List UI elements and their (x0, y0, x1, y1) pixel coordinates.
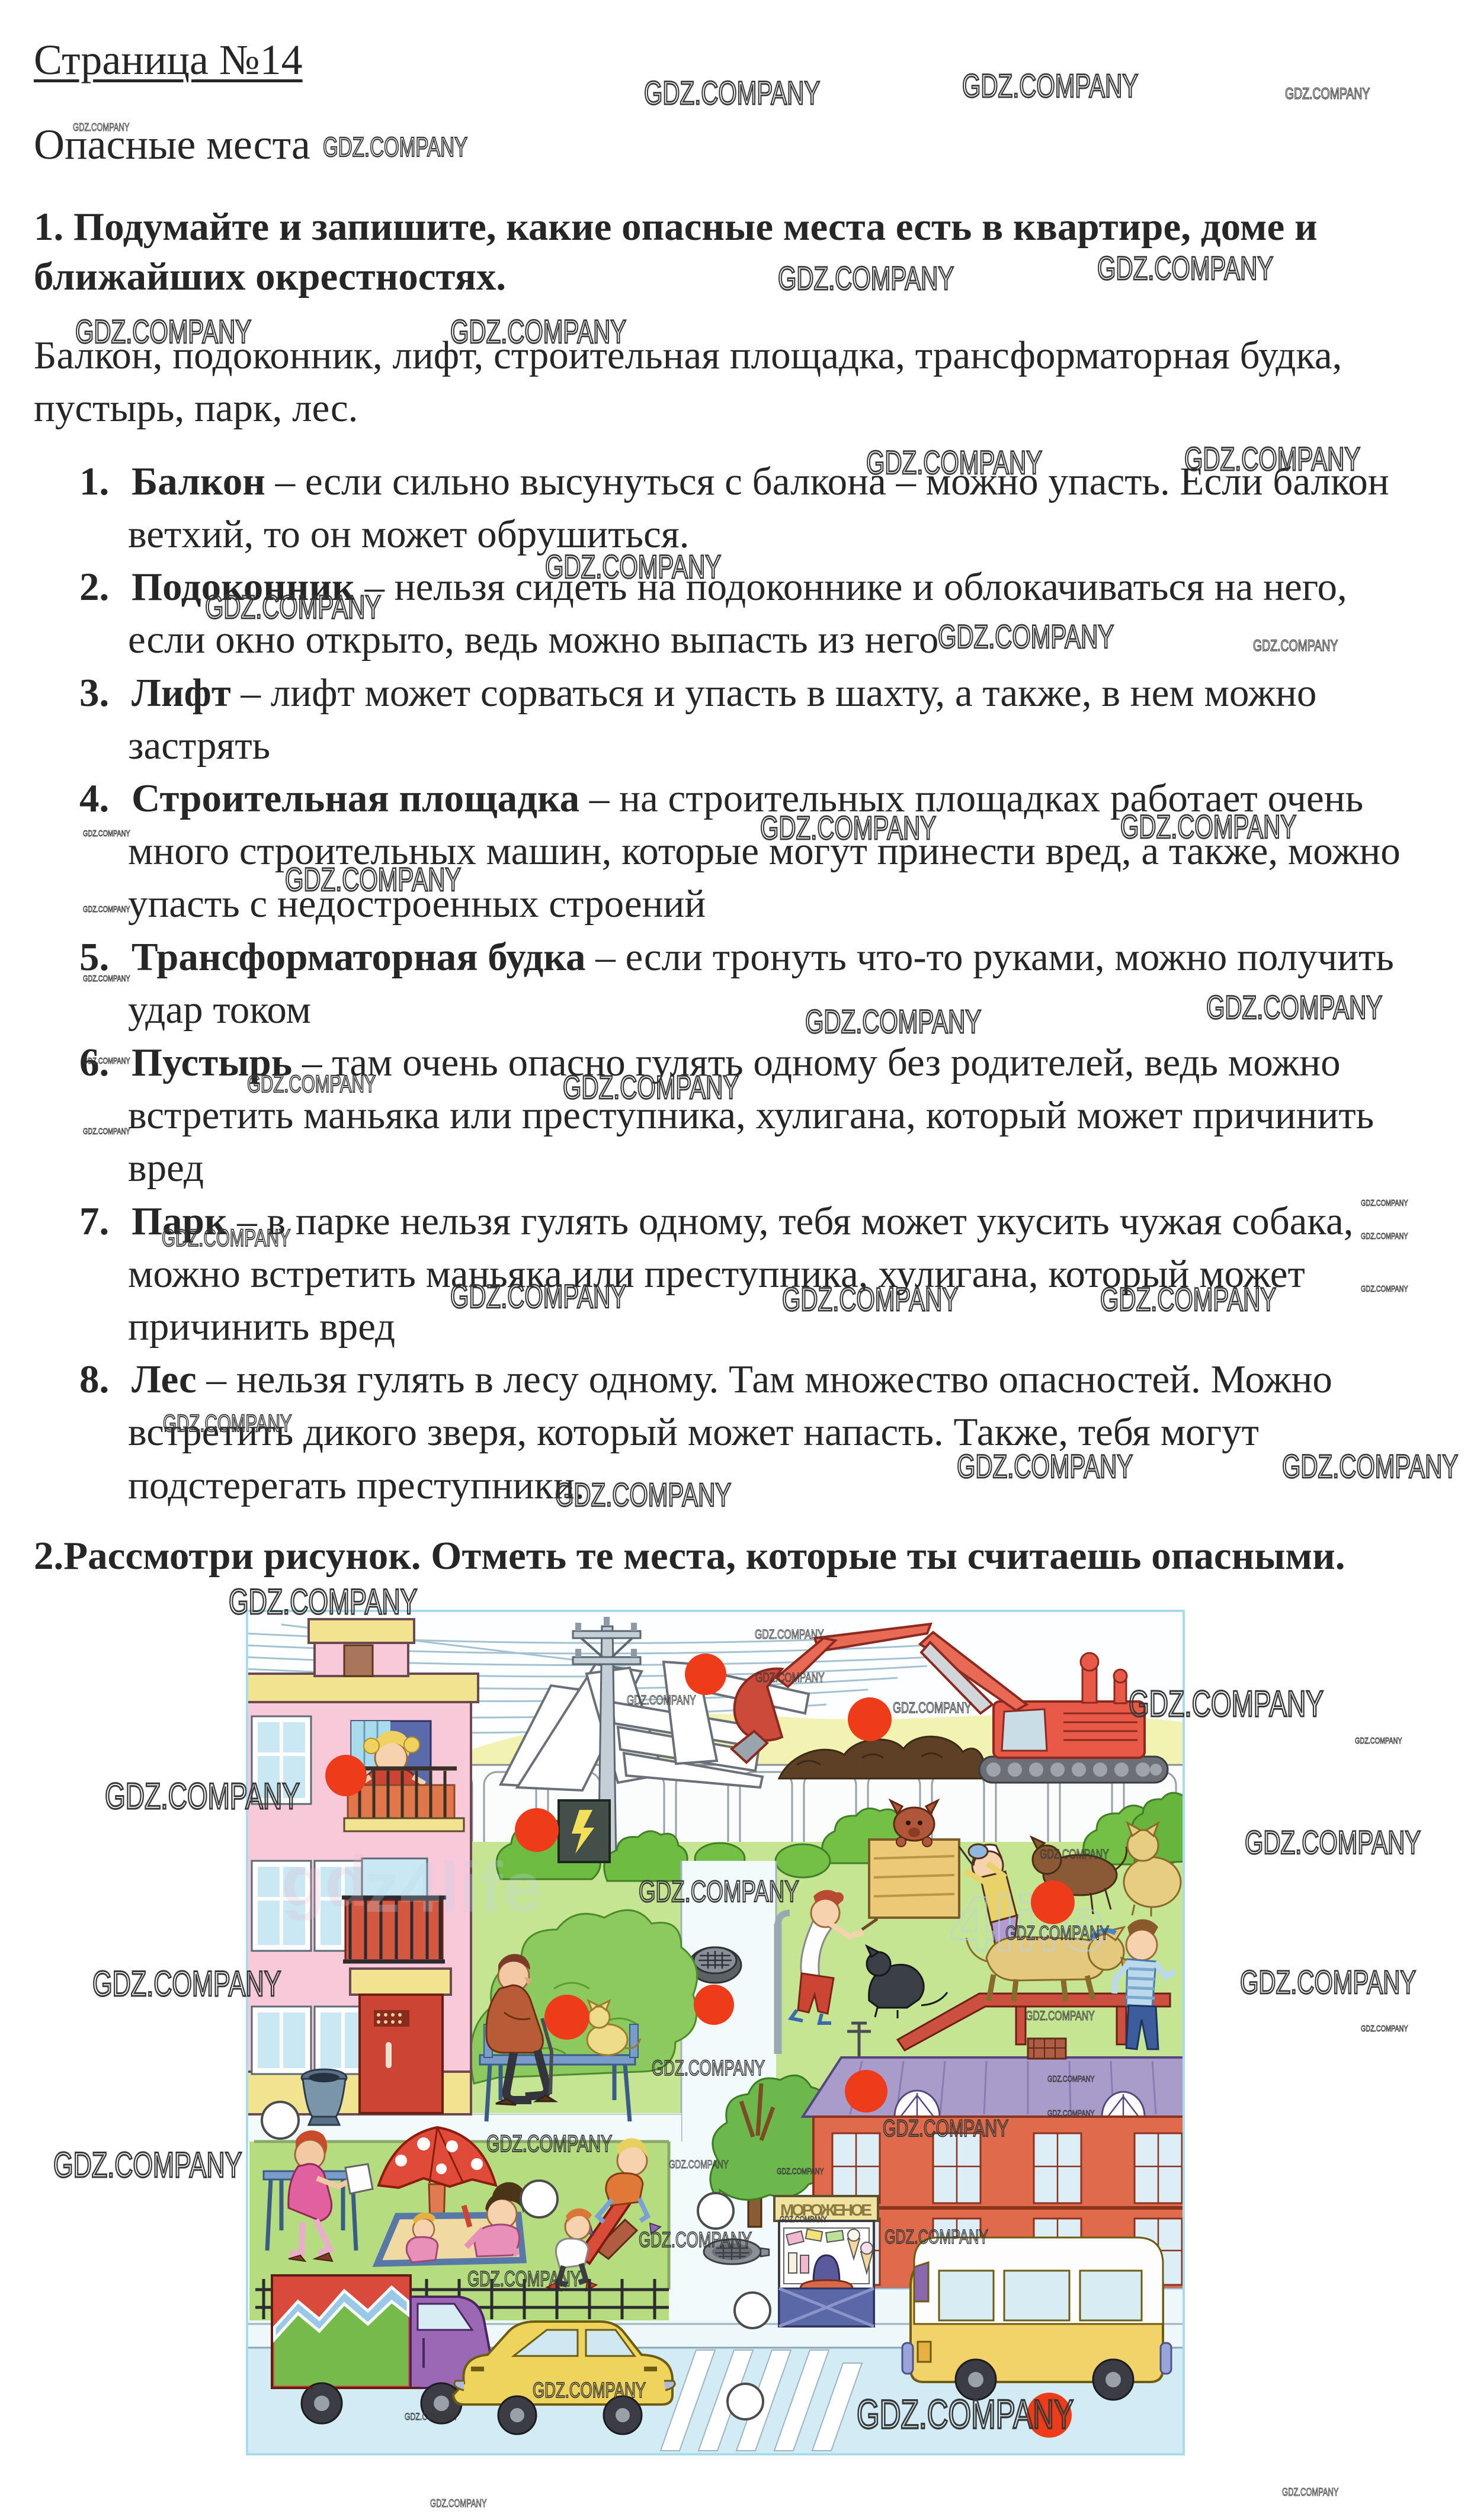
svg-text:z4life: z4life (364, 1848, 542, 1927)
svg-text:gd: gd (281, 1842, 368, 1921)
